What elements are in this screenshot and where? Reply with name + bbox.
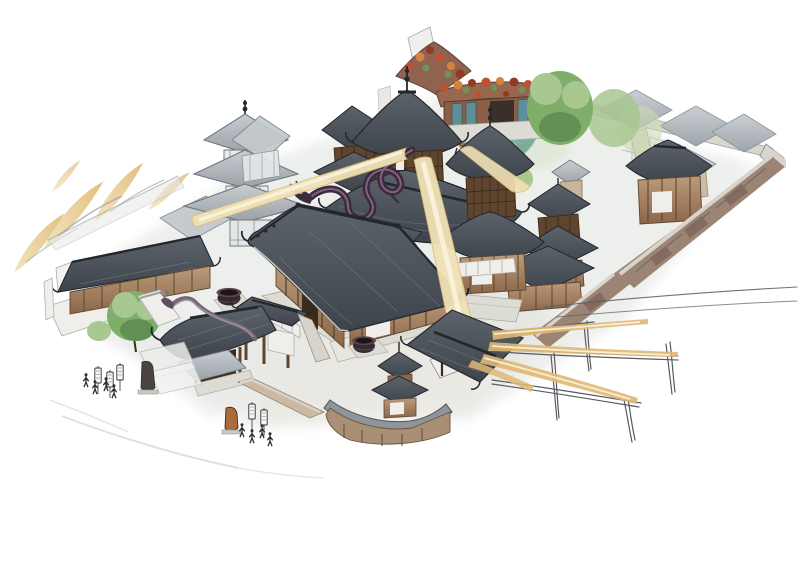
doorway (490, 100, 514, 125)
statue-pedestal (138, 390, 158, 394)
end-wall (44, 278, 54, 320)
wall-panel (652, 191, 672, 213)
statue-pedestal (222, 430, 241, 434)
illustration-canvas: Watercolor isometric illustration of a w… (0, 0, 800, 579)
pilgrim-group-west (84, 361, 158, 398)
wall-panel (390, 402, 404, 415)
tree-canopy (588, 89, 640, 147)
bronze-statue (225, 407, 238, 431)
temple-complex-illustration: Watercolor isometric illustration of a w… (0, 0, 800, 579)
bush (87, 321, 111, 341)
